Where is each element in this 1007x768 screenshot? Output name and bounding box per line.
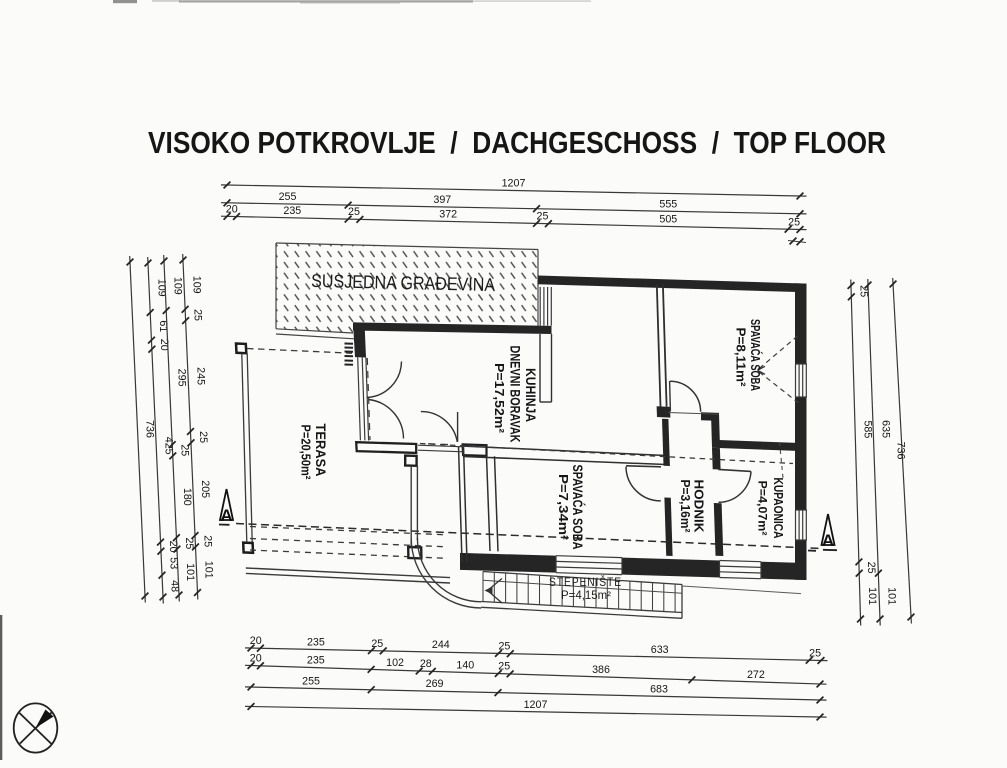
svg-text:736: 736 — [895, 442, 907, 460]
svg-text:255: 255 — [302, 675, 320, 687]
svg-text:28: 28 — [420, 658, 432, 670]
svg-text:25: 25 — [179, 444, 191, 456]
svg-text:25: 25 — [197, 431, 209, 443]
svg-text:25: 25 — [371, 638, 383, 650]
svg-text:180: 180 — [181, 488, 193, 506]
svg-text:P=3,16m²: P=3,16m² — [678, 480, 692, 533]
svg-text:20: 20 — [250, 653, 262, 665]
svg-text:SUSJEDNA GRAĐEVINA: SUSJEDNA GRAĐEVINA — [311, 270, 496, 295]
svg-text:635: 635 — [879, 420, 891, 438]
svg-text:VISOKO POTKROVLJE / DACHGESC: VISOKO POTKROVLJE / DACHGESCHOSS / TOP F… — [148, 126, 886, 160]
svg-text:245: 245 — [194, 367, 206, 385]
svg-text:101: 101 — [885, 587, 897, 605]
svg-text:STEPENIŠTE: STEPENIŠTE — [549, 574, 622, 589]
svg-text:SPAVAĆA SOBA: SPAVAĆA SOBA — [748, 319, 763, 391]
svg-text:TERASA: TERASA — [313, 424, 329, 477]
svg-text:109: 109 — [171, 277, 183, 295]
svg-text:25: 25 — [809, 647, 821, 659]
svg-text:102: 102 — [386, 657, 404, 669]
svg-text:235: 235 — [307, 655, 325, 667]
svg-text:736: 736 — [144, 420, 156, 438]
svg-text:P=4,07m²: P=4,07m² — [756, 481, 770, 536]
svg-text:505: 505 — [659, 214, 677, 226]
svg-text:235: 235 — [283, 205, 301, 217]
svg-text:HODNIK: HODNIK — [692, 480, 707, 534]
svg-text:25: 25 — [498, 641, 510, 653]
svg-text:372: 372 — [439, 208, 457, 220]
svg-text:DNEVNI BORAVAK: DNEVNI BORAVAK — [508, 346, 523, 443]
svg-text:235: 235 — [307, 636, 325, 648]
svg-text:101: 101 — [203, 561, 215, 579]
svg-text:255: 255 — [279, 191, 297, 203]
svg-text:20: 20 — [226, 203, 238, 215]
svg-text:140: 140 — [456, 660, 474, 672]
svg-text:KUPAONICA: KUPAONICA — [771, 478, 785, 539]
svg-text:25: 25 — [537, 211, 549, 223]
svg-text:633: 633 — [651, 644, 669, 656]
svg-text:386: 386 — [592, 664, 610, 676]
svg-text:269: 269 — [426, 678, 444, 690]
svg-text:101: 101 — [184, 563, 196, 581]
svg-text:109: 109 — [190, 276, 202, 294]
svg-text:P=4,15m²: P=4,15m² — [561, 590, 611, 602]
svg-text:KUHINJA: KUHINJA — [523, 368, 538, 422]
svg-text:P=17,52m²: P=17,52m² — [492, 363, 507, 434]
svg-text:397: 397 — [433, 194, 451, 206]
svg-text:25: 25 — [865, 562, 877, 574]
svg-text:P=20,50m²: P=20,50m² — [299, 425, 313, 480]
svg-text:20: 20 — [250, 635, 262, 647]
svg-text:25: 25 — [192, 309, 204, 321]
svg-text:A: A — [822, 531, 834, 550]
svg-text:1207: 1207 — [502, 178, 526, 190]
svg-text:P=7,34m²: P=7,34m² — [556, 474, 571, 541]
svg-text:585: 585 — [861, 420, 873, 438]
svg-text:1207: 1207 — [524, 699, 548, 711]
svg-text:101: 101 — [866, 587, 878, 605]
svg-text:25: 25 — [788, 216, 800, 228]
svg-text:25: 25 — [201, 535, 213, 547]
svg-text:25: 25 — [348, 206, 360, 218]
svg-text:683: 683 — [650, 683, 668, 695]
svg-text:25: 25 — [183, 537, 195, 549]
svg-text:295: 295 — [175, 369, 187, 387]
svg-text:272: 272 — [747, 669, 765, 681]
svg-text:205: 205 — [199, 480, 211, 498]
svg-text:SPAVAĆA SOBA: SPAVAĆA SOBA — [570, 465, 585, 550]
svg-text:25: 25 — [498, 661, 510, 673]
svg-text:555: 555 — [659, 198, 677, 210]
svg-text:A: A — [220, 506, 232, 525]
svg-text:P=8,11m²: P=8,11m² — [734, 328, 748, 387]
svg-text:244: 244 — [432, 639, 450, 651]
